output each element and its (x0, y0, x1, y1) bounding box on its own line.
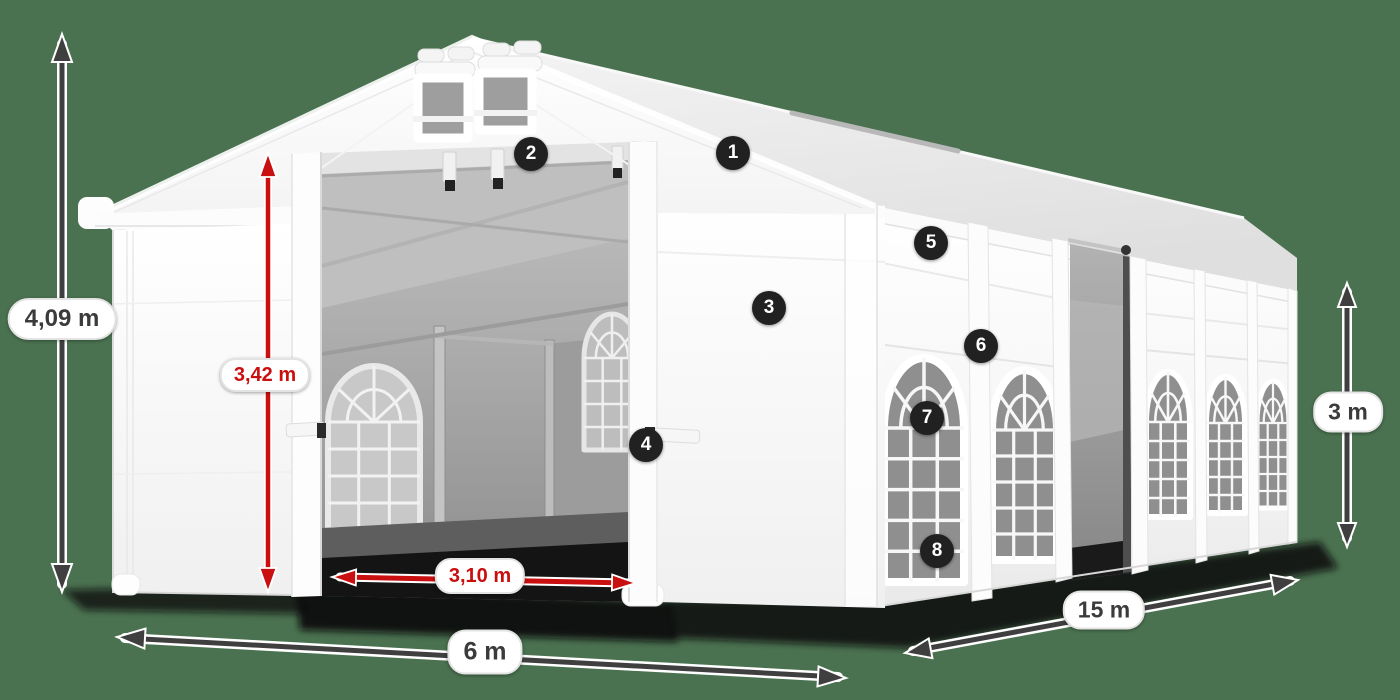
strap-buckle (317, 423, 326, 438)
dimension-label-front-width: 6 m (447, 630, 522, 675)
corner-post-wrap (845, 204, 877, 607)
marker-1[interactable]: 1 (716, 136, 750, 170)
marker-8[interactable]: 8 (920, 534, 954, 568)
entrance-interior (322, 140, 640, 602)
marker-5[interactable]: 5 (914, 226, 948, 260)
arched-window (992, 370, 1057, 560)
dimension-label-entrance-width: 3,10 m (435, 558, 525, 594)
dimension-label-wall-height: 3 m (1313, 392, 1383, 433)
gable-vent-right (474, 41, 542, 130)
vent-bar (474, 110, 537, 116)
dimension-label-total-height: 4,09 m (8, 298, 117, 340)
pole-joint (1121, 245, 1131, 255)
side-open-section (1068, 240, 1131, 580)
marker-2[interactable]: 2 (514, 137, 548, 171)
arched-window (328, 366, 420, 530)
tent-illustration (0, 0, 1400, 700)
marker-3[interactable]: 3 (752, 291, 786, 325)
arched-window (1257, 381, 1289, 508)
diagram-stage: 4,09 m 3,42 m 3,10 m 6 m 15 m 3 m 1 2 3 … (0, 0, 1400, 700)
arched-window (1146, 372, 1190, 517)
vent-opening (479, 73, 532, 130)
marker-4[interactable]: 4 (629, 428, 663, 462)
front-right-panel (622, 196, 885, 608)
dimension-label-entrance-height: 3,42 m (220, 358, 310, 392)
arched-window (1206, 377, 1245, 513)
marker-6[interactable]: 6 (964, 329, 998, 363)
marker-7[interactable]: 7 (910, 401, 944, 435)
vent-opening (418, 78, 468, 138)
interior-side-window (328, 366, 420, 530)
vent-bar (413, 116, 473, 122)
dimension-label-side-length: 15 m (1063, 591, 1145, 630)
fabric-fold (112, 574, 140, 595)
